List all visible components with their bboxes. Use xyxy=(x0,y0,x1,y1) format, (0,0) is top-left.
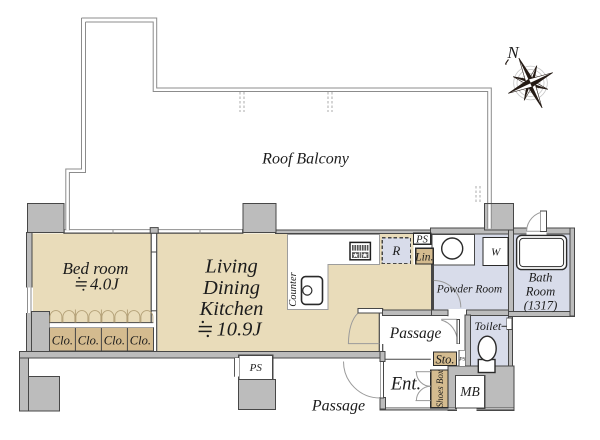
svg-text:Kitchen: Kitchen xyxy=(199,298,264,320)
svg-text:Clo.: Clo. xyxy=(130,334,151,348)
svg-text:R: R xyxy=(391,243,400,258)
svg-text:N: N xyxy=(506,43,520,62)
svg-text:Clo.: Clo. xyxy=(52,334,73,348)
svg-text:Bath: Bath xyxy=(529,271,553,285)
svg-text:Clo.: Clo. xyxy=(104,334,125,348)
svg-text:MB: MB xyxy=(459,384,480,399)
svg-text:PS: PS xyxy=(458,357,465,363)
svg-text:Living: Living xyxy=(204,255,257,277)
svg-text:Dining: Dining xyxy=(202,277,260,299)
svg-text:(1317): (1317) xyxy=(524,299,558,313)
svg-text:Roof Balcony: Roof Balcony xyxy=(261,151,350,168)
svg-text:Ent.: Ent. xyxy=(390,375,421,395)
svg-text:Shoes Box: Shoes Box xyxy=(435,370,445,407)
svg-text:Room: Room xyxy=(525,285,555,299)
svg-text:PS: PS xyxy=(415,235,428,246)
svg-text:Passage: Passage xyxy=(389,325,442,342)
svg-text:W: W xyxy=(491,247,501,259)
svg-text:Clo.: Clo. xyxy=(78,334,99,348)
svg-text:Sto.: Sto. xyxy=(435,353,454,367)
svg-text:Lin.: Lin. xyxy=(414,251,433,263)
svg-text:Powder Room: Powder Room xyxy=(436,284,502,296)
svg-text:Toilet: Toilet xyxy=(474,319,502,333)
svg-text:Passage: Passage xyxy=(311,398,365,415)
svg-text:4.0J: 4.0J xyxy=(90,275,120,294)
svg-text:10.9J: 10.9J xyxy=(217,319,263,341)
svg-text:Counter: Counter xyxy=(288,271,299,306)
svg-text:PS: PS xyxy=(249,362,263,374)
